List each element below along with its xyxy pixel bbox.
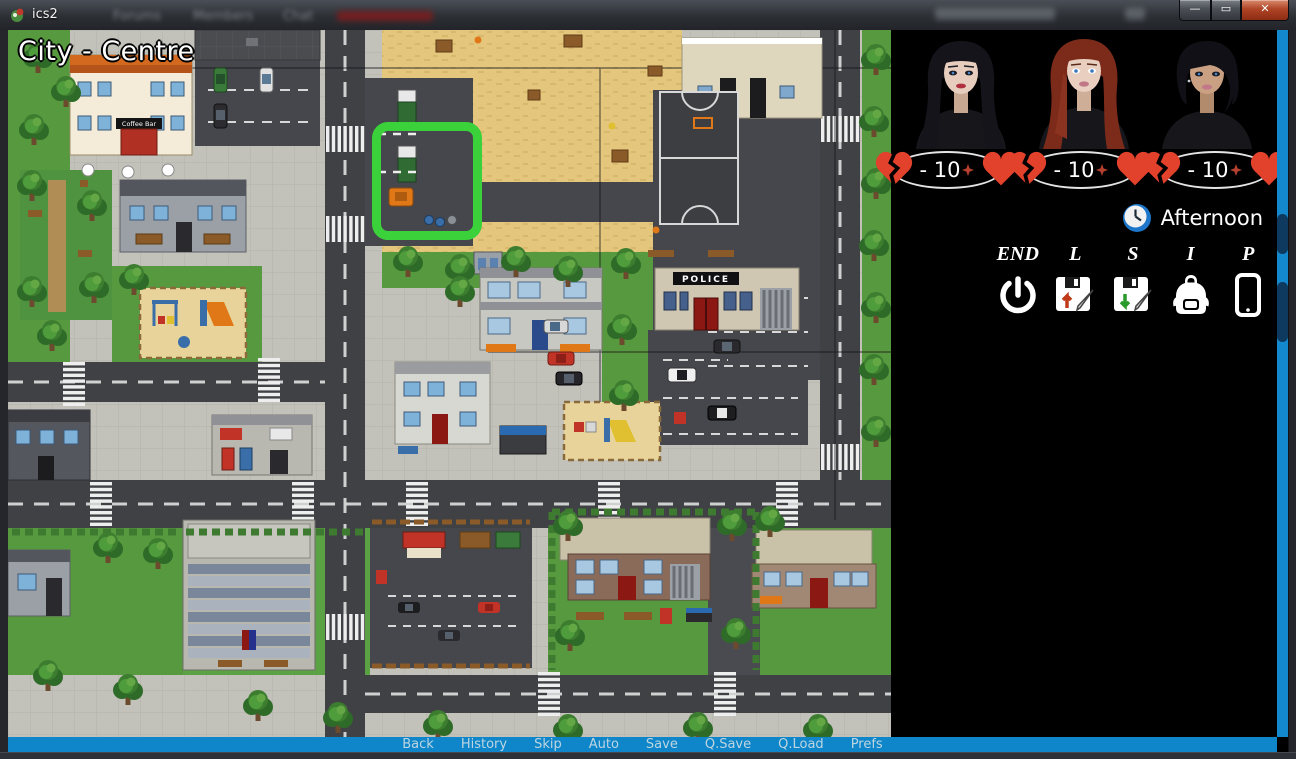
building-coffee-bar[interactable]: Coffee Bar	[70, 55, 192, 187]
phone-icon	[1230, 272, 1266, 318]
broken-heart-icon	[1140, 149, 1184, 189]
clock-icon	[1122, 203, 1152, 233]
building-house[interactable]	[752, 530, 876, 608]
status-panel: - 10 - 10 - 10	[891, 30, 1277, 737]
quickmenu-qload[interactable]: Q.Load	[778, 737, 824, 752]
game-map[interactable]: Coffee Bar	[8, 30, 891, 737]
window-frame-right	[1288, 30, 1296, 752]
affection-value: - 10	[1054, 158, 1095, 182]
background-blurred-user	[935, 8, 1055, 20]
phone-label: P	[1219, 243, 1277, 266]
time-display: Afternoon	[891, 203, 1277, 233]
quickmenu-save[interactable]: Save	[646, 737, 678, 752]
quickmenu-qsave[interactable]: Q.Save	[705, 737, 751, 752]
background-tab: Chat	[283, 9, 313, 24]
playground-2[interactable]	[564, 402, 660, 460]
end-button[interactable]	[989, 270, 1047, 320]
load-button[interactable]	[1047, 270, 1105, 320]
sparkle-icon	[962, 164, 974, 176]
affection-meter-3: - 10	[1160, 151, 1270, 189]
background-blurred-text	[337, 11, 433, 21]
affection-value: - 10	[1188, 158, 1229, 182]
affection-meter-1: - 10	[892, 151, 1002, 189]
end-label: END	[989, 243, 1047, 266]
floppy-load-icon	[1053, 274, 1097, 316]
side-scrollbar[interactable]	[1277, 30, 1288, 737]
scrollbar-blob	[1277, 282, 1288, 342]
window-controls: — ▭ ✕	[1179, 0, 1289, 22]
sparkle-icon	[1230, 164, 1242, 176]
app-icon	[9, 7, 25, 23]
kiosk	[500, 426, 546, 454]
quickmenu-prefs[interactable]: Prefs	[851, 737, 883, 752]
close-button[interactable]: ✕	[1241, 0, 1289, 21]
affection-meter-2: - 10	[1026, 151, 1136, 189]
power-icon	[997, 274, 1039, 316]
basketball-court[interactable]	[660, 92, 738, 224]
playground-1[interactable]	[140, 288, 246, 358]
backpack-icon	[1169, 272, 1213, 318]
building-small[interactable]	[8, 550, 70, 616]
building-left-dark[interactable]	[8, 410, 90, 480]
corner-square	[1277, 737, 1288, 752]
quickmenu-back[interactable]: Back	[402, 737, 434, 752]
floppy-save-icon	[1111, 274, 1155, 316]
background-tab: Members	[193, 9, 253, 24]
scrollbar-blob	[1277, 214, 1288, 254]
affection-value: - 10	[920, 158, 961, 182]
affection-meters: - 10 - 10 - 10	[885, 151, 1277, 189]
background-tab: Forums	[113, 9, 161, 24]
character-portraits	[891, 30, 1277, 149]
map-location-label: City - Centre	[18, 36, 195, 67]
quickmenu-auto[interactable]: Auto	[589, 737, 619, 752]
save-label: S	[1104, 243, 1162, 266]
menu-button-labels: END L S I P	[891, 243, 1277, 266]
broken-heart-icon	[1006, 149, 1050, 189]
window-titlebar[interactable]: ics2 Forums Members Chat — ▭ ✕	[0, 0, 1296, 31]
quickmenu-history[interactable]: History	[461, 737, 507, 752]
svg-text:POLICE: POLICE	[682, 275, 730, 285]
quickmenu-skip[interactable]: Skip	[534, 737, 562, 752]
map-highlight[interactable]	[372, 122, 482, 240]
sparkle-icon	[1096, 164, 1108, 176]
building-dark-roof[interactable]	[195, 30, 320, 60]
svg-text:Coffee Bar: Coffee Bar	[122, 120, 157, 128]
load-label: L	[1047, 243, 1105, 266]
building-glass-roof[interactable]	[183, 520, 315, 670]
building-apartment[interactable]	[120, 180, 246, 252]
portrait-girl-1[interactable]	[902, 33, 1020, 149]
portrait-girl-2[interactable]	[1025, 33, 1143, 149]
background-blurred-icon	[1125, 8, 1145, 20]
time-of-day-label: Afternoon	[1161, 206, 1263, 230]
portrait-girl-3[interactable]	[1148, 33, 1266, 149]
menu-buttons	[891, 270, 1277, 320]
building-office[interactable]	[480, 268, 602, 352]
phone-button[interactable]	[1219, 270, 1277, 320]
minimize-button[interactable]: —	[1179, 0, 1211, 21]
building-shop[interactable]	[212, 415, 312, 475]
inventory-label: I	[1162, 243, 1220, 266]
maximize-button[interactable]: ▭	[1211, 0, 1241, 21]
save-button[interactable]	[1104, 270, 1162, 320]
building-store[interactable]	[395, 362, 490, 454]
window-title: ics2	[32, 7, 58, 22]
quick-menu-bar: Back History Skip Auto Save Q.Save Q.Loa…	[8, 737, 1277, 752]
broken-heart-icon	[872, 149, 916, 189]
inventory-button[interactable]	[1162, 270, 1220, 320]
building-police-station[interactable]: POLICE	[655, 268, 799, 330]
